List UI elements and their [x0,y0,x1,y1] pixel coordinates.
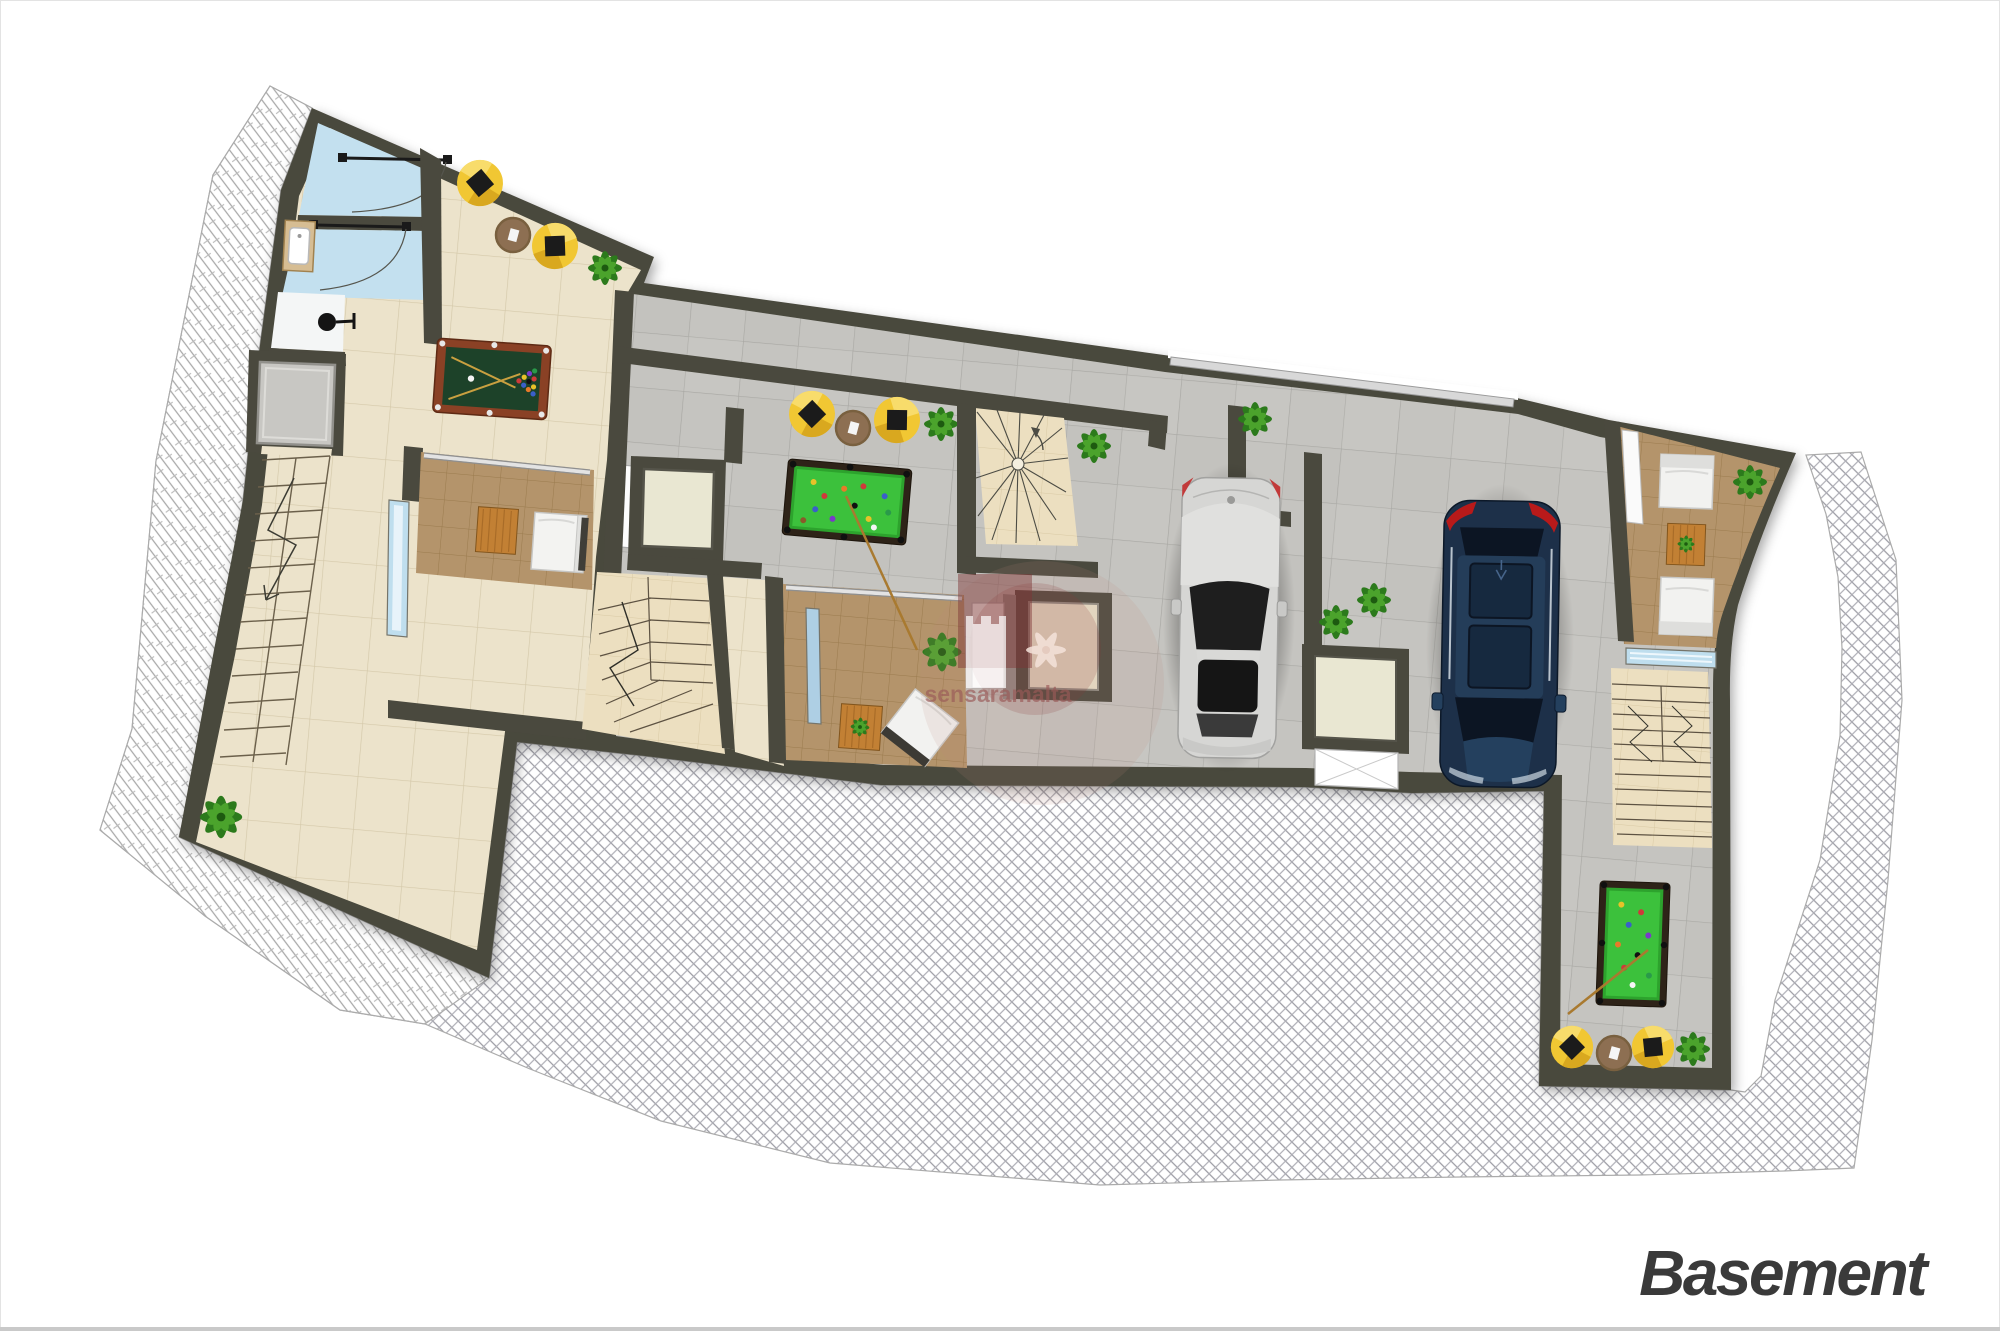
svg-text:sensaramalta: sensaramalta [924,681,1071,707]
svg-text:Basement: Basement [1639,1237,1930,1309]
